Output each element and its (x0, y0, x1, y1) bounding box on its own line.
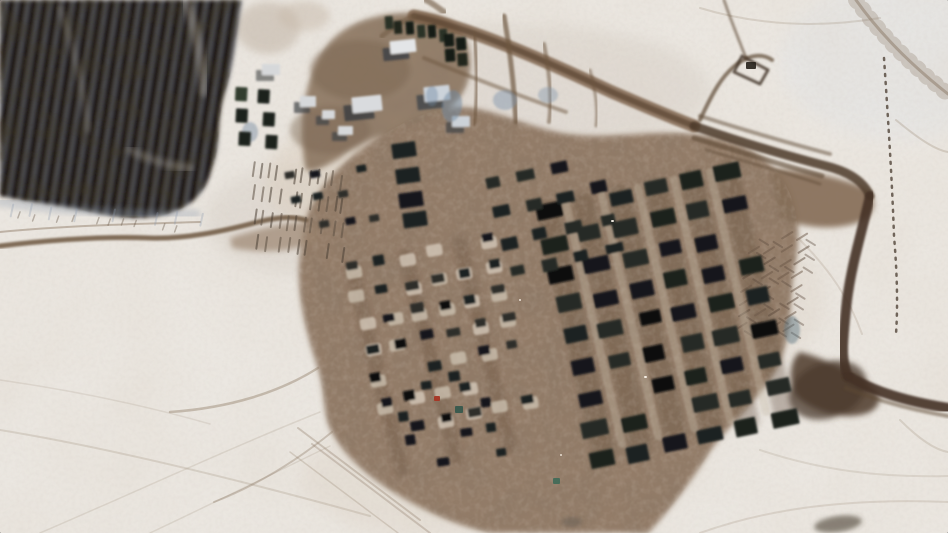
satellite-image-viewport (0, 0, 948, 533)
satellite-image (0, 0, 948, 533)
